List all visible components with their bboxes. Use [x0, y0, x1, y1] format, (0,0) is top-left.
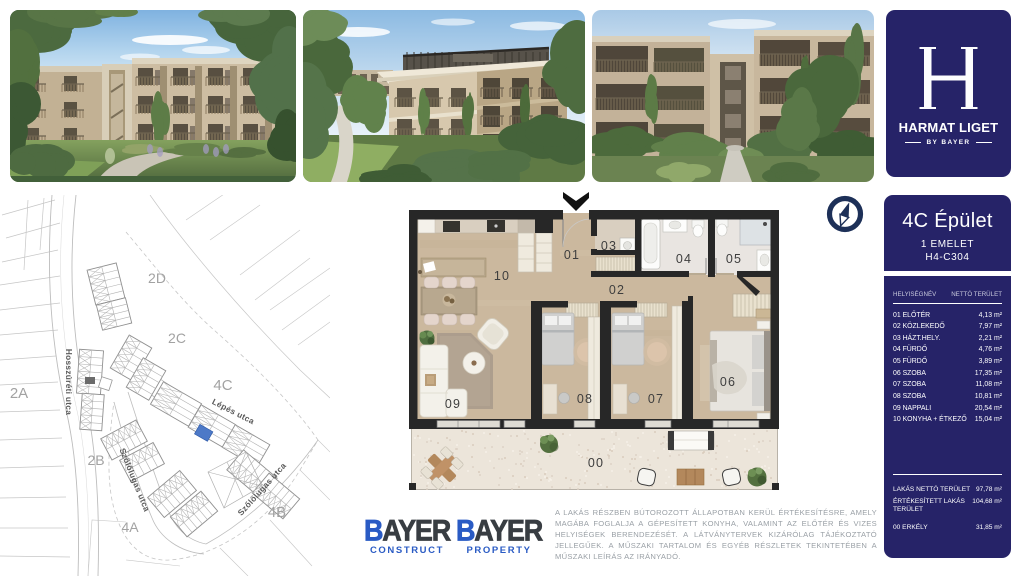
svg-text:4A: 4A: [121, 519, 139, 535]
svg-text:4C: 4C: [213, 377, 232, 394]
svg-text:07: 07: [648, 392, 664, 406]
svg-text:01: 01: [564, 248, 580, 262]
svg-text:03: 03: [601, 239, 617, 253]
svg-text:2C: 2C: [168, 330, 186, 346]
svg-text:4B: 4B: [268, 504, 286, 521]
svg-text:2D: 2D: [148, 270, 166, 286]
svg-text:2A: 2A: [10, 385, 28, 402]
svg-text:2B: 2B: [87, 452, 104, 468]
svg-text:10: 10: [494, 269, 510, 283]
svg-text:05: 05: [726, 252, 742, 266]
svg-text:06: 06: [720, 375, 736, 389]
svg-text:02: 02: [609, 283, 625, 297]
svg-text:00: 00: [588, 456, 604, 470]
svg-text:Hosszúréti utca: Hosszúréti utca: [64, 349, 74, 415]
svg-text:09: 09: [445, 397, 461, 411]
svg-text:04: 04: [676, 252, 692, 266]
svg-text:08: 08: [577, 392, 593, 406]
